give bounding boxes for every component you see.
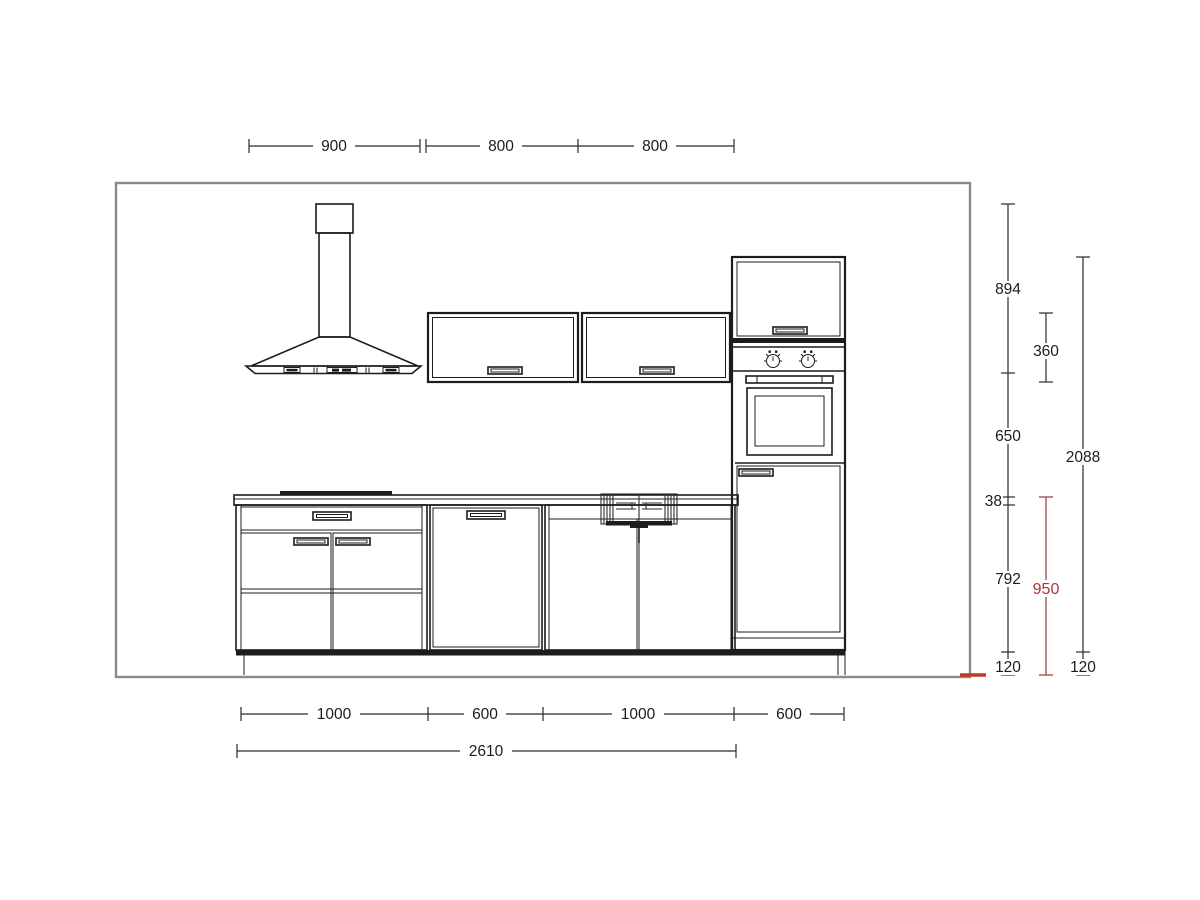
dim-top-800-1: 800	[488, 138, 514, 155]
dimension-right-chain: 894 650 38 792 120	[975, 204, 1029, 676]
dim-120-right: 120	[1070, 659, 1096, 676]
drawing-canvas: 900 800 800 894 650 38 792 120 360	[0, 0, 1200, 900]
dimension-wall-unit-height: 360	[1025, 313, 1067, 382]
built-in-oven	[732, 371, 845, 463]
door-handle	[467, 511, 505, 519]
cabinet-handle	[739, 469, 773, 476]
dimension-top-row: 900 800 800	[249, 138, 734, 155]
cabinet-handle	[640, 367, 674, 374]
dim-360: 360	[1033, 343, 1059, 360]
oven-knob-left	[764, 351, 782, 368]
dimension-bottom-total: 2610	[237, 743, 736, 760]
dim-bottom-1000-1: 1000	[317, 706, 352, 723]
dim-top-900: 900	[321, 138, 347, 155]
drawer-handle	[313, 512, 351, 520]
wall-cabinet-left	[428, 313, 578, 382]
room-wall-outline	[116, 183, 986, 677]
dim-bottom-600-2: 600	[776, 706, 802, 723]
dim-894: 894	[995, 281, 1021, 298]
oven-knob-right	[799, 351, 817, 368]
dimension-worktop-level: 950	[1025, 497, 1067, 675]
kitchen-elevation-drawing: 900 800 800 894 650 38 792 120 360	[0, 0, 1200, 900]
dim-bottom-1000-2: 1000	[621, 706, 656, 723]
dim-2088: 2088	[1066, 449, 1100, 466]
dim-bottom-600-1: 600	[472, 706, 498, 723]
tall-oven-housing	[732, 257, 845, 650]
dim-950: 950	[1033, 581, 1060, 598]
wall-cabinet-right	[582, 313, 730, 382]
dishwasher-unit	[430, 505, 542, 650]
dimension-tall-unit-height: 2088 120	[1057, 257, 1109, 676]
worktop	[234, 491, 738, 505]
dim-792: 792	[995, 571, 1021, 588]
plinth	[236, 650, 845, 675]
dimension-bottom-row: 1000 600 1000 600	[241, 706, 844, 723]
door-handle	[336, 538, 370, 545]
chimney-hood	[246, 204, 421, 374]
dim-38: 38	[985, 493, 1002, 510]
dim-top-800-2: 800	[642, 138, 668, 155]
door-handle	[294, 538, 328, 545]
hob	[280, 491, 392, 496]
cabinet-handle	[773, 327, 807, 334]
dim-2610: 2610	[469, 743, 504, 760]
dim-650: 650	[995, 428, 1021, 445]
base-drawer-unit	[236, 505, 427, 650]
dim-120-left: 120	[995, 659, 1021, 676]
cabinet-handle	[488, 367, 522, 374]
